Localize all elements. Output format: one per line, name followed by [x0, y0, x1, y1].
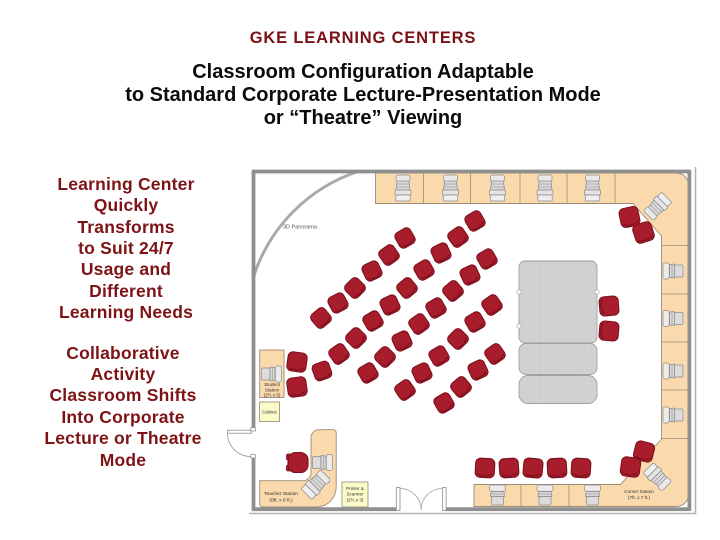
- svg-text:Printer &: Printer &: [346, 486, 364, 491]
- svg-text:Corner Station: Corner Station: [624, 489, 654, 494]
- svg-text:Teacher Station: Teacher Station: [264, 491, 298, 497]
- svg-text:Student: Student: [264, 382, 281, 387]
- svg-text:(8ft. x 8 ft.): (8ft. x 8 ft.): [269, 498, 293, 504]
- svg-text:Scanner: Scanner: [346, 492, 364, 497]
- svg-text:(7ft. x 7 ft.): (7ft. x 7 ft.): [628, 495, 650, 500]
- svg-text:(2½ x 5): (2½ x 5): [264, 392, 281, 398]
- svg-text:Cabinet: Cabinet: [262, 410, 277, 415]
- svg-text:(2½ x 3): (2½ x 3): [347, 496, 364, 502]
- svg-text:3D Panorama: 3D Panorama: [283, 225, 318, 231]
